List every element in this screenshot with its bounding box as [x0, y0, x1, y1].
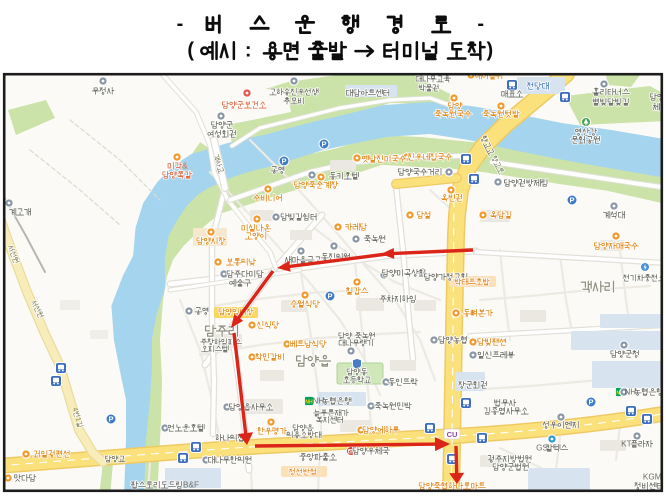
svg-text:KGM: KGM [643, 472, 662, 481]
svg-text:GS: GS [536, 443, 548, 452]
svg-text:P: P [588, 398, 593, 407]
svg-text:P: P [327, 292, 332, 301]
svg-text:P: P [108, 415, 113, 424]
svg-text:KT: KT [621, 439, 631, 448]
svg-text::: : [245, 40, 252, 62]
svg-text:NH: NH [624, 387, 636, 396]
svg-text:CU: CU [447, 430, 458, 439]
svg-text:&: & [182, 161, 188, 170]
svg-text:B&F: B&F [183, 480, 199, 489]
svg-text:-: - [177, 13, 184, 35]
svg-text:(: ( [187, 40, 194, 62]
svg-text:P: P [281, 157, 286, 166]
svg-text:-: - [477, 13, 484, 35]
svg-text:P: P [569, 196, 574, 205]
svg-text:): ) [486, 40, 493, 62]
svg-text:NH: NH [312, 396, 324, 405]
svg-text:P: P [321, 140, 326, 149]
